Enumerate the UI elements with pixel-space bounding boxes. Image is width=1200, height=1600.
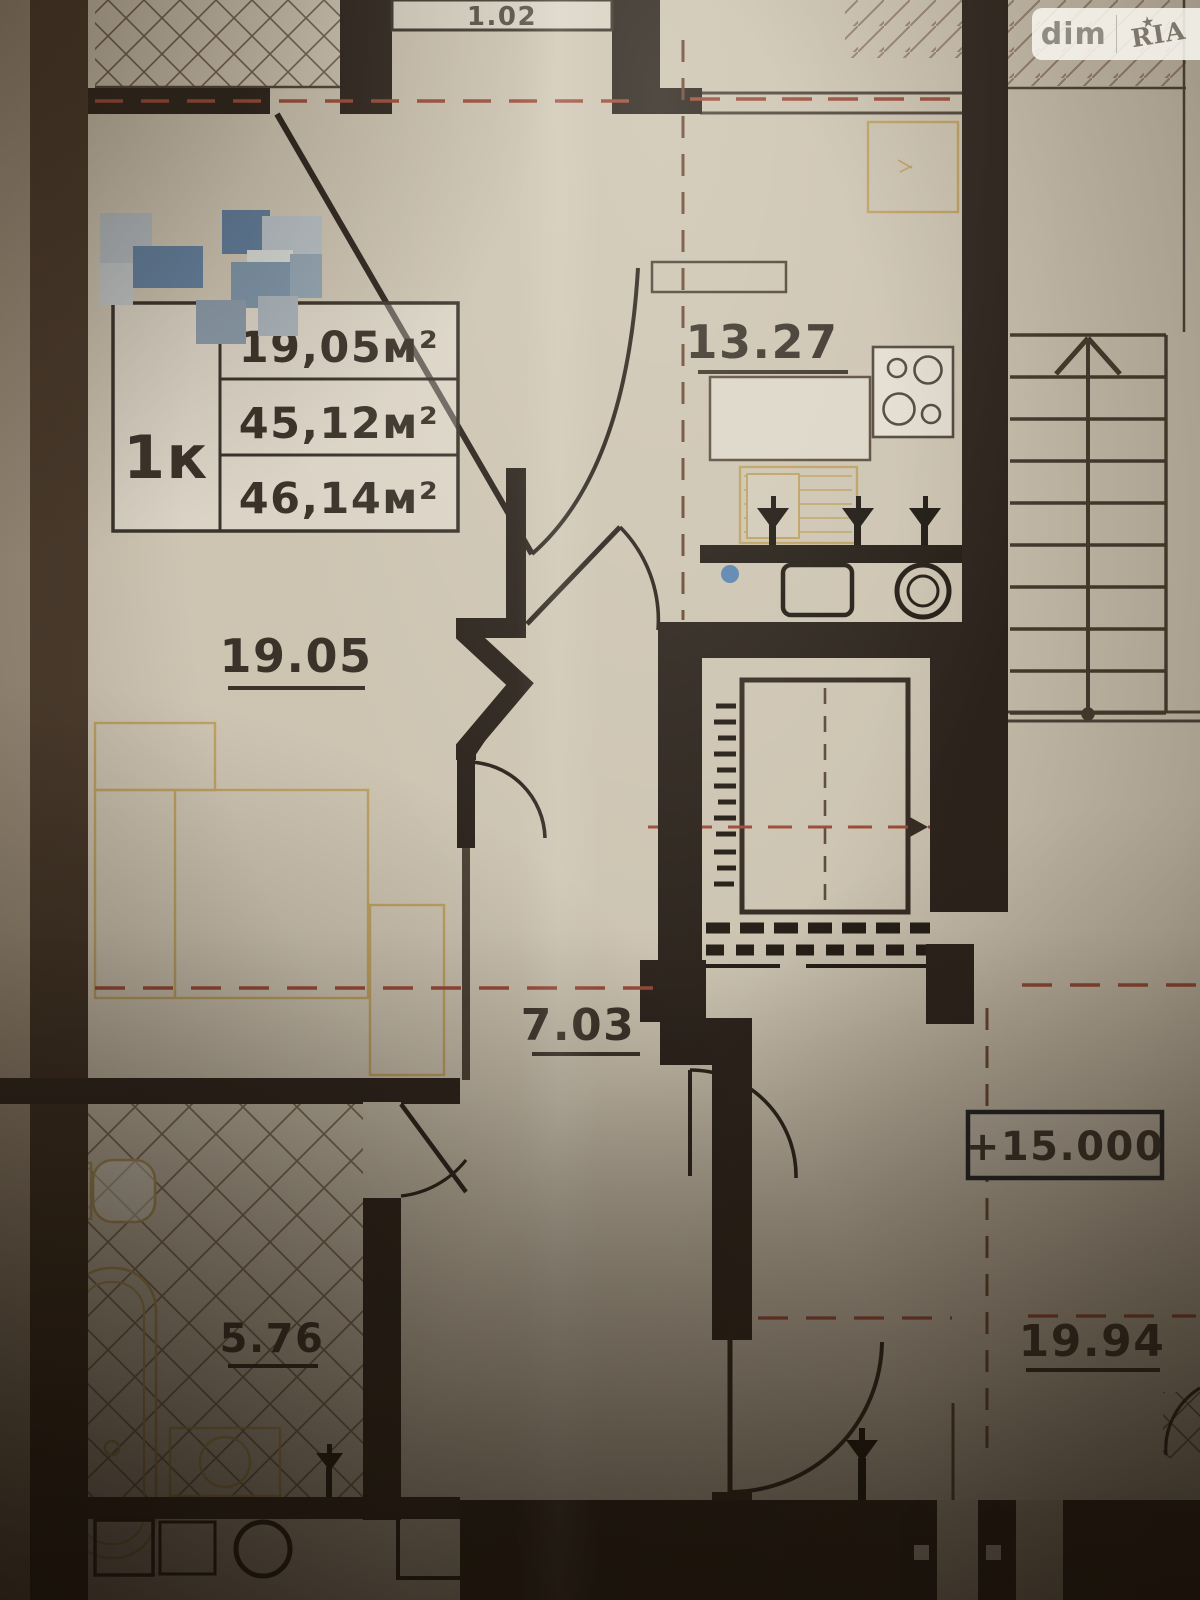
bathroom-right-wall (363, 1198, 401, 1520)
paper-left-edge (0, 0, 30, 1600)
elevation-marker-text: +15.000 (966, 1124, 1164, 1170)
dim-ria-watermark: dim ★ RIA (1032, 8, 1200, 60)
top-label-box: 1.02 (392, 0, 612, 32)
watermark-dim-text: dim (1032, 17, 1116, 52)
bathroom-tile-hatch (57, 1100, 363, 1500)
top-hatch-left (845, 0, 962, 58)
label-kitchen-area: 13.27 (685, 315, 838, 369)
bottom-wall-band (460, 1500, 1200, 1600)
stove (873, 347, 953, 437)
floorplan-drawing: 1к 19,05м² 45,12м² 46,14м² 1.02 13.27 19… (0, 0, 1200, 1600)
label-hallway-area: 7.03 (521, 1000, 636, 1051)
bottom-doorways (900, 1500, 1063, 1600)
elevation-marker: +15.000 (966, 1112, 1164, 1178)
unit-info-box: 1к 19,05м² 45,12м² 46,14м² (113, 303, 458, 531)
label-living-room-area: 19.05 (219, 629, 372, 683)
top-label-text: 1.02 (467, 2, 537, 32)
water-point-marker (721, 565, 739, 583)
unit-type-label: 1к (123, 423, 208, 493)
label-neighbor-room-area: 19.94 (1019, 1316, 1166, 1367)
watermark-ria-text: RIA (1129, 15, 1188, 52)
kitchen-plumbing-wall (700, 545, 965, 563)
shaft-top-wall (658, 622, 965, 658)
unit-area-row-3: 46,14м² (239, 474, 440, 524)
left-outer-wall (30, 0, 88, 1600)
balcony-hatch (95, 0, 340, 86)
shaft-left-wall (658, 622, 702, 1018)
room-divider-wall (712, 1018, 752, 1340)
floorplan-photo: 1к 19,05м² 45,12м² 46,14м² 1.02 13.27 19… (0, 0, 1200, 1600)
kitchen-worktop (710, 377, 870, 460)
label-bathroom-area: 5.76 (220, 1316, 325, 1362)
watermark-ria: ★ RIA (1117, 20, 1200, 49)
unit-area-row-2: 45,12м² (239, 399, 440, 449)
